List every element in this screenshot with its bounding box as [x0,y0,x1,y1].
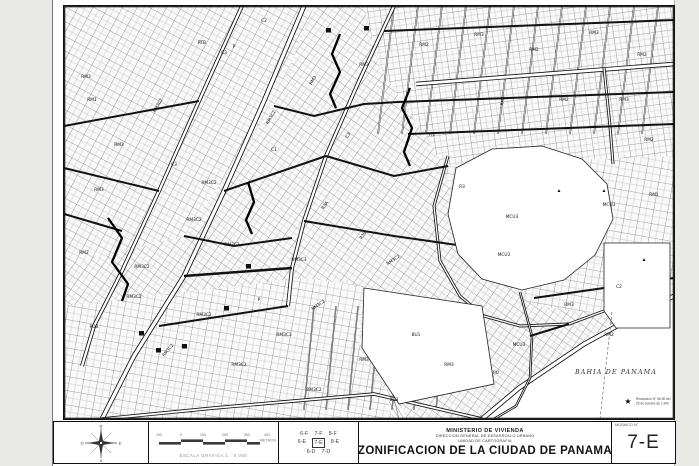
zone-label: RM3C2 [134,264,149,270]
building-block [246,264,251,269]
building-block [139,331,144,336]
zone-label: R3 [429,132,435,138]
scale-caption: ESCALA GRAFICA 1 : 5,000 [180,453,248,458]
zone-label: RTB [198,40,206,46]
zone-label: RM3 [81,74,91,80]
zone-label: RM3 [589,30,599,36]
map-sheet-page: RM3C2C3RM3C2RTBPRM1RM3C3RM3C2RM3RM2RM3C2… [0,0,699,466]
zone-label: RM3C2 [306,387,321,393]
svg-text:200: 200 [221,433,227,437]
unit-line: UNIDAD DE CARTOGRAFIA [458,439,511,444]
scale-bar-box: 100 0 100 200 300 400 METROS ESCALA GRAF… [149,422,279,463]
title-bar: N S E O 100 0 100 200 300 400 METROS [53,421,676,464]
zone-label: RM2 [529,47,539,53]
mosaic-label: MOSAICO N° [615,423,638,427]
zone-label: MCU3 [506,214,519,220]
star-icon: ★ [624,397,631,406]
zone-label: RM2 [79,250,89,256]
svg-text:O: O [80,440,83,445]
svg-text:METROS: METROS [259,438,276,442]
zone-label: RM2 [644,137,654,143]
zone-label: C3 [171,162,177,168]
zone-label: RM3C3 [276,332,291,338]
scale-bar: 100 0 100 200 300 400 METROS [151,428,277,452]
zone-label: RM3C2 [201,180,216,186]
grid-cell: 6-D [307,448,316,456]
sheet-grid-index: 6-F 7-F 8-F 6-E 7-E 8-E 6-D 7-D [279,422,359,463]
zone-label: RM3 [619,97,629,103]
zone-label: C2 [616,284,622,290]
svg-text:S: S [100,458,103,462]
zone-label: P [233,44,236,50]
grid-cell: 6-F [300,430,308,438]
landmark-triangle-icon: ▲ [642,257,647,263]
zone-label: RM3C2 [196,312,211,318]
zone-label: PU [493,370,499,376]
zone-label: BU1 [412,332,421,338]
zone-label: RM3C2 [186,217,201,223]
convention-block [604,243,670,328]
zoning-map: RM3C2C3RM3C2RTBPRM1RM3C3RM3C2RM3RM2RM3C2… [63,5,675,420]
building-block [156,348,161,353]
resolution-note-line2: 26 de octubre de 1,990 [636,402,669,406]
zone-label: P [258,297,261,303]
svg-text:E: E [119,440,122,445]
map-title: ZONIFICACION DE LA CIUDAD DE PANAMA [358,445,612,457]
svg-text:100: 100 [155,433,161,437]
zone-label: RM3C3 [291,257,306,263]
zone-label: RM3C3 [224,242,239,248]
zone-label: BU3 [390,397,399,403]
zone-label: RM3 [94,187,104,193]
zone-label: RM3 [444,362,454,368]
resolution-note-line1: Resolucion N° 55-90 del [636,397,671,401]
building-block [224,306,229,311]
zone-label: MCU3 [603,202,616,208]
zoning-map-canvas: RM3C2C3RM3C2RTBPRM1RM3C3RM3C2RM3RM2RM3C2… [64,6,674,419]
zone-label: RM2 [419,42,429,48]
zone-label: RM3 [359,357,369,363]
zone-label: RM1 [87,97,97,103]
zone-label: R3 [459,184,465,190]
zone-label: RM2 [637,52,647,58]
landmark-triangle-icon: ▲ [557,188,562,194]
grid-cell-current: 7-E [312,438,325,448]
grid-cell: 7-F [314,430,322,438]
compass-rose-icon: N S E O [79,424,123,462]
zone-label: C1 [271,147,277,153]
svg-text:N: N [100,424,103,429]
zone-label: RM3 [564,302,574,308]
svg-text:400: 400 [264,433,270,437]
grid-cell: 8-E [331,438,340,448]
zone-label: RM2 [559,97,569,103]
grid-cell: 6-E [298,438,307,448]
zone-label: RM3 [359,62,369,68]
grid-cell: 8-F [329,430,337,438]
zone-label: C2 [261,18,267,24]
zone-label: RM3C2 [231,362,246,368]
title-block: MINISTERIO DE VIVIENDA DIRECCION GENERAL… [359,422,612,463]
zone-label: MCU3 [498,252,511,258]
svg-text:300: 300 [243,433,249,437]
zone-label: RM3 [114,142,124,148]
zone-label: RM3C2 [126,294,141,300]
zone-label: RM2 [604,332,614,338]
compass-box: N S E O [54,422,149,463]
svg-text:100: 100 [199,433,205,437]
zone-label: C3 [221,50,227,56]
bay-label: BAHIA DE PANAMA [574,368,657,376]
svg-text:0: 0 [179,433,181,437]
landmark-triangle-icon: ▲ [602,188,607,194]
zone-label: RM3 [474,32,484,38]
building-block [326,28,331,33]
zone-label: PUB [90,324,99,330]
mosaic-number: 7-E [627,432,660,454]
building-block [364,26,369,31]
mosaic-box: MOSAICO N° 7-E [612,422,675,463]
grid-cell: 7-D [322,448,331,456]
zone-label: MCU3 [513,342,526,348]
map-sheet: RM3C2C3RM3C2RTBPRM1RM3C3RM3C2RM3RM2RM3C2… [52,0,675,466]
zone-label: RM1 [649,192,659,198]
building-block [182,344,187,349]
